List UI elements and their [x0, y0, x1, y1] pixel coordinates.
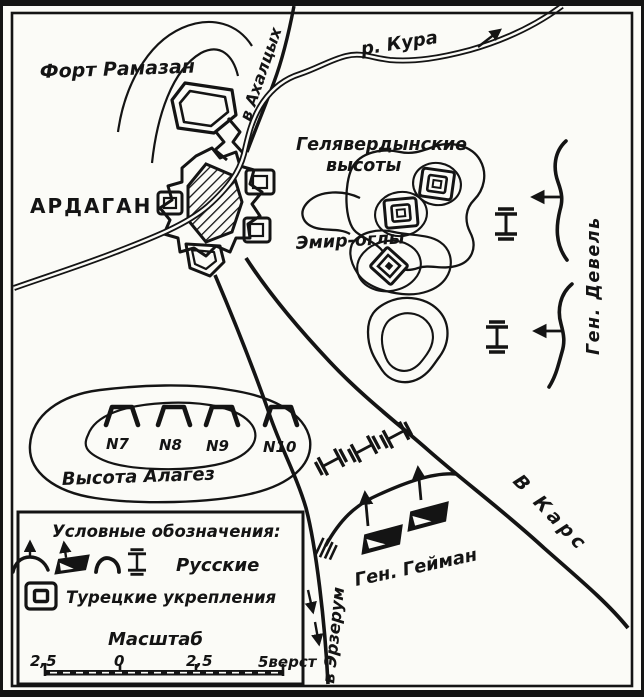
- fort-ramazan-label: Форт Рамазан: [39, 56, 195, 83]
- geyman-group: [315, 468, 456, 561]
- legend: Условные обозначения: Русские Турецкие у…: [13, 512, 318, 684]
- attack-arrow-icon: [418, 468, 421, 500]
- front-brace: [549, 284, 572, 387]
- gelyaverdy-heights-label: Гелявердынские: [296, 135, 467, 155]
- turkish-fort-icon: [384, 198, 418, 229]
- redoubt-label-n9: N9: [206, 437, 229, 455]
- fort-inner-wall: [180, 91, 228, 126]
- scale-tick: 2,5: [186, 652, 213, 670]
- to-erzerum-label: в Эрзерум: [319, 586, 348, 684]
- city-label: АРДАГАН: [30, 194, 152, 218]
- redoubt-label-n8: N8: [159, 436, 182, 454]
- fort-ramazan: [172, 83, 243, 160]
- to-kars-label: В Карс: [508, 470, 592, 556]
- map-canvas: Форт Рамазан АРДАГАН р. Кура в Ахалцых Г…: [0, 0, 644, 697]
- legend-title: Условные обозначения:: [52, 522, 281, 541]
- redoubt-label-n10: N10: [263, 438, 296, 456]
- gen-devel-label: Ген. Девель: [584, 216, 604, 355]
- russian-artillery-icon: [347, 434, 381, 465]
- russian-artillery-icon: [486, 322, 508, 352]
- river-kura: [14, 6, 562, 288]
- road-arrow-icon: [308, 590, 313, 612]
- gelyaverdy-heights-label2: высоты: [326, 156, 401, 176]
- russian-artillery-icon: [495, 209, 517, 239]
- legend-turkish-label: Турецкие укрепления: [66, 588, 277, 607]
- front-brace: [555, 141, 567, 260]
- russian-artillery-icon: [314, 447, 348, 478]
- hatch-marks-icon: [315, 537, 337, 561]
- river-core: [14, 6, 562, 288]
- russian-unit-block-icon: [356, 524, 407, 555]
- scale-tick: 2,5: [30, 652, 57, 670]
- attack-arrow-icon: [365, 493, 368, 526]
- devel-front-lines: [533, 141, 572, 387]
- alagez-height-label: Высота Алагез: [61, 464, 215, 490]
- turkish-fort-diamond-icon: [370, 247, 408, 285]
- contour-lines-south-hill: [368, 298, 448, 382]
- river-kura-label: р. Кура: [359, 27, 440, 60]
- road-arrow-icon: [315, 622, 319, 644]
- map-ardagan: Форт Рамазан АРДАГАН р. Кура в Ахалцых Г…: [0, 0, 644, 697]
- redoubt-icon: [265, 407, 297, 425]
- contour-line: [382, 313, 433, 371]
- redoubt-icon: [158, 407, 190, 425]
- redoubt-icon: [206, 407, 238, 425]
- legend-russians-label: Русские: [176, 555, 259, 576]
- scale-tick: 5верст: [258, 653, 318, 671]
- turkish-fort-icon: [419, 168, 455, 200]
- city-ardagan: [158, 148, 274, 276]
- russian-unit-block-icon: [402, 501, 453, 532]
- scale-title: Масштаб: [108, 629, 203, 650]
- redoubt-label-n7: N7: [106, 435, 130, 453]
